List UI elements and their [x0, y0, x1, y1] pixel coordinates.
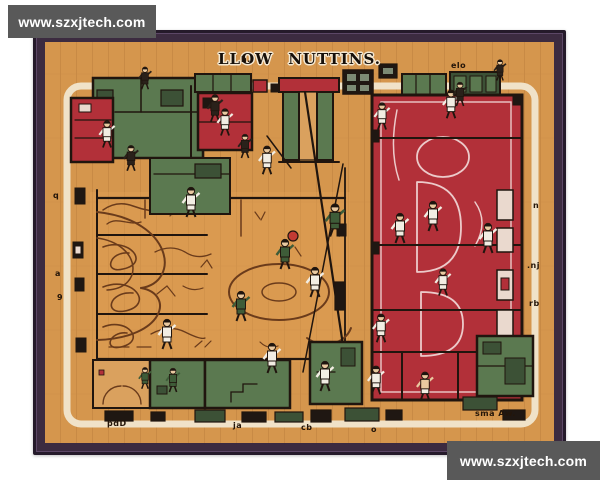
watermark-top-left: www.szxjtech.com — [8, 5, 156, 38]
scribble-text: h. — [241, 56, 251, 64]
scribble-text: a — [55, 270, 61, 278]
scribble-text: q — [53, 192, 59, 200]
scribble-text: rb — [529, 300, 540, 308]
gym-floorplan-artwork: LLOW NUTTINS. h.eloqa9n.njrbpdDjacbosma … — [45, 42, 554, 443]
scribble-text: sma Aw. — [475, 410, 516, 418]
scribble-text: .nj — [527, 262, 540, 270]
picture-frame: LLOW NUTTINS. h.eloqa9n.njrbpdDjacbosma … — [33, 30, 566, 455]
page: { "artwork": { "title": "LLOW NUTTINS." … — [0, 0, 600, 480]
scribble-text: 9 — [57, 294, 63, 302]
scribble-text: cb — [301, 424, 312, 432]
scribble-text: n — [533, 202, 539, 210]
gym-illustration — [45, 42, 554, 443]
scribble-text: pdD — [107, 420, 127, 428]
basketball — [288, 231, 298, 241]
scribble-text: o — [371, 426, 377, 434]
watermark-bottom-right: www.szxjtech.com — [447, 441, 600, 480]
scribble-text: elo — [451, 62, 466, 70]
scribble-text: ja — [233, 422, 242, 430]
